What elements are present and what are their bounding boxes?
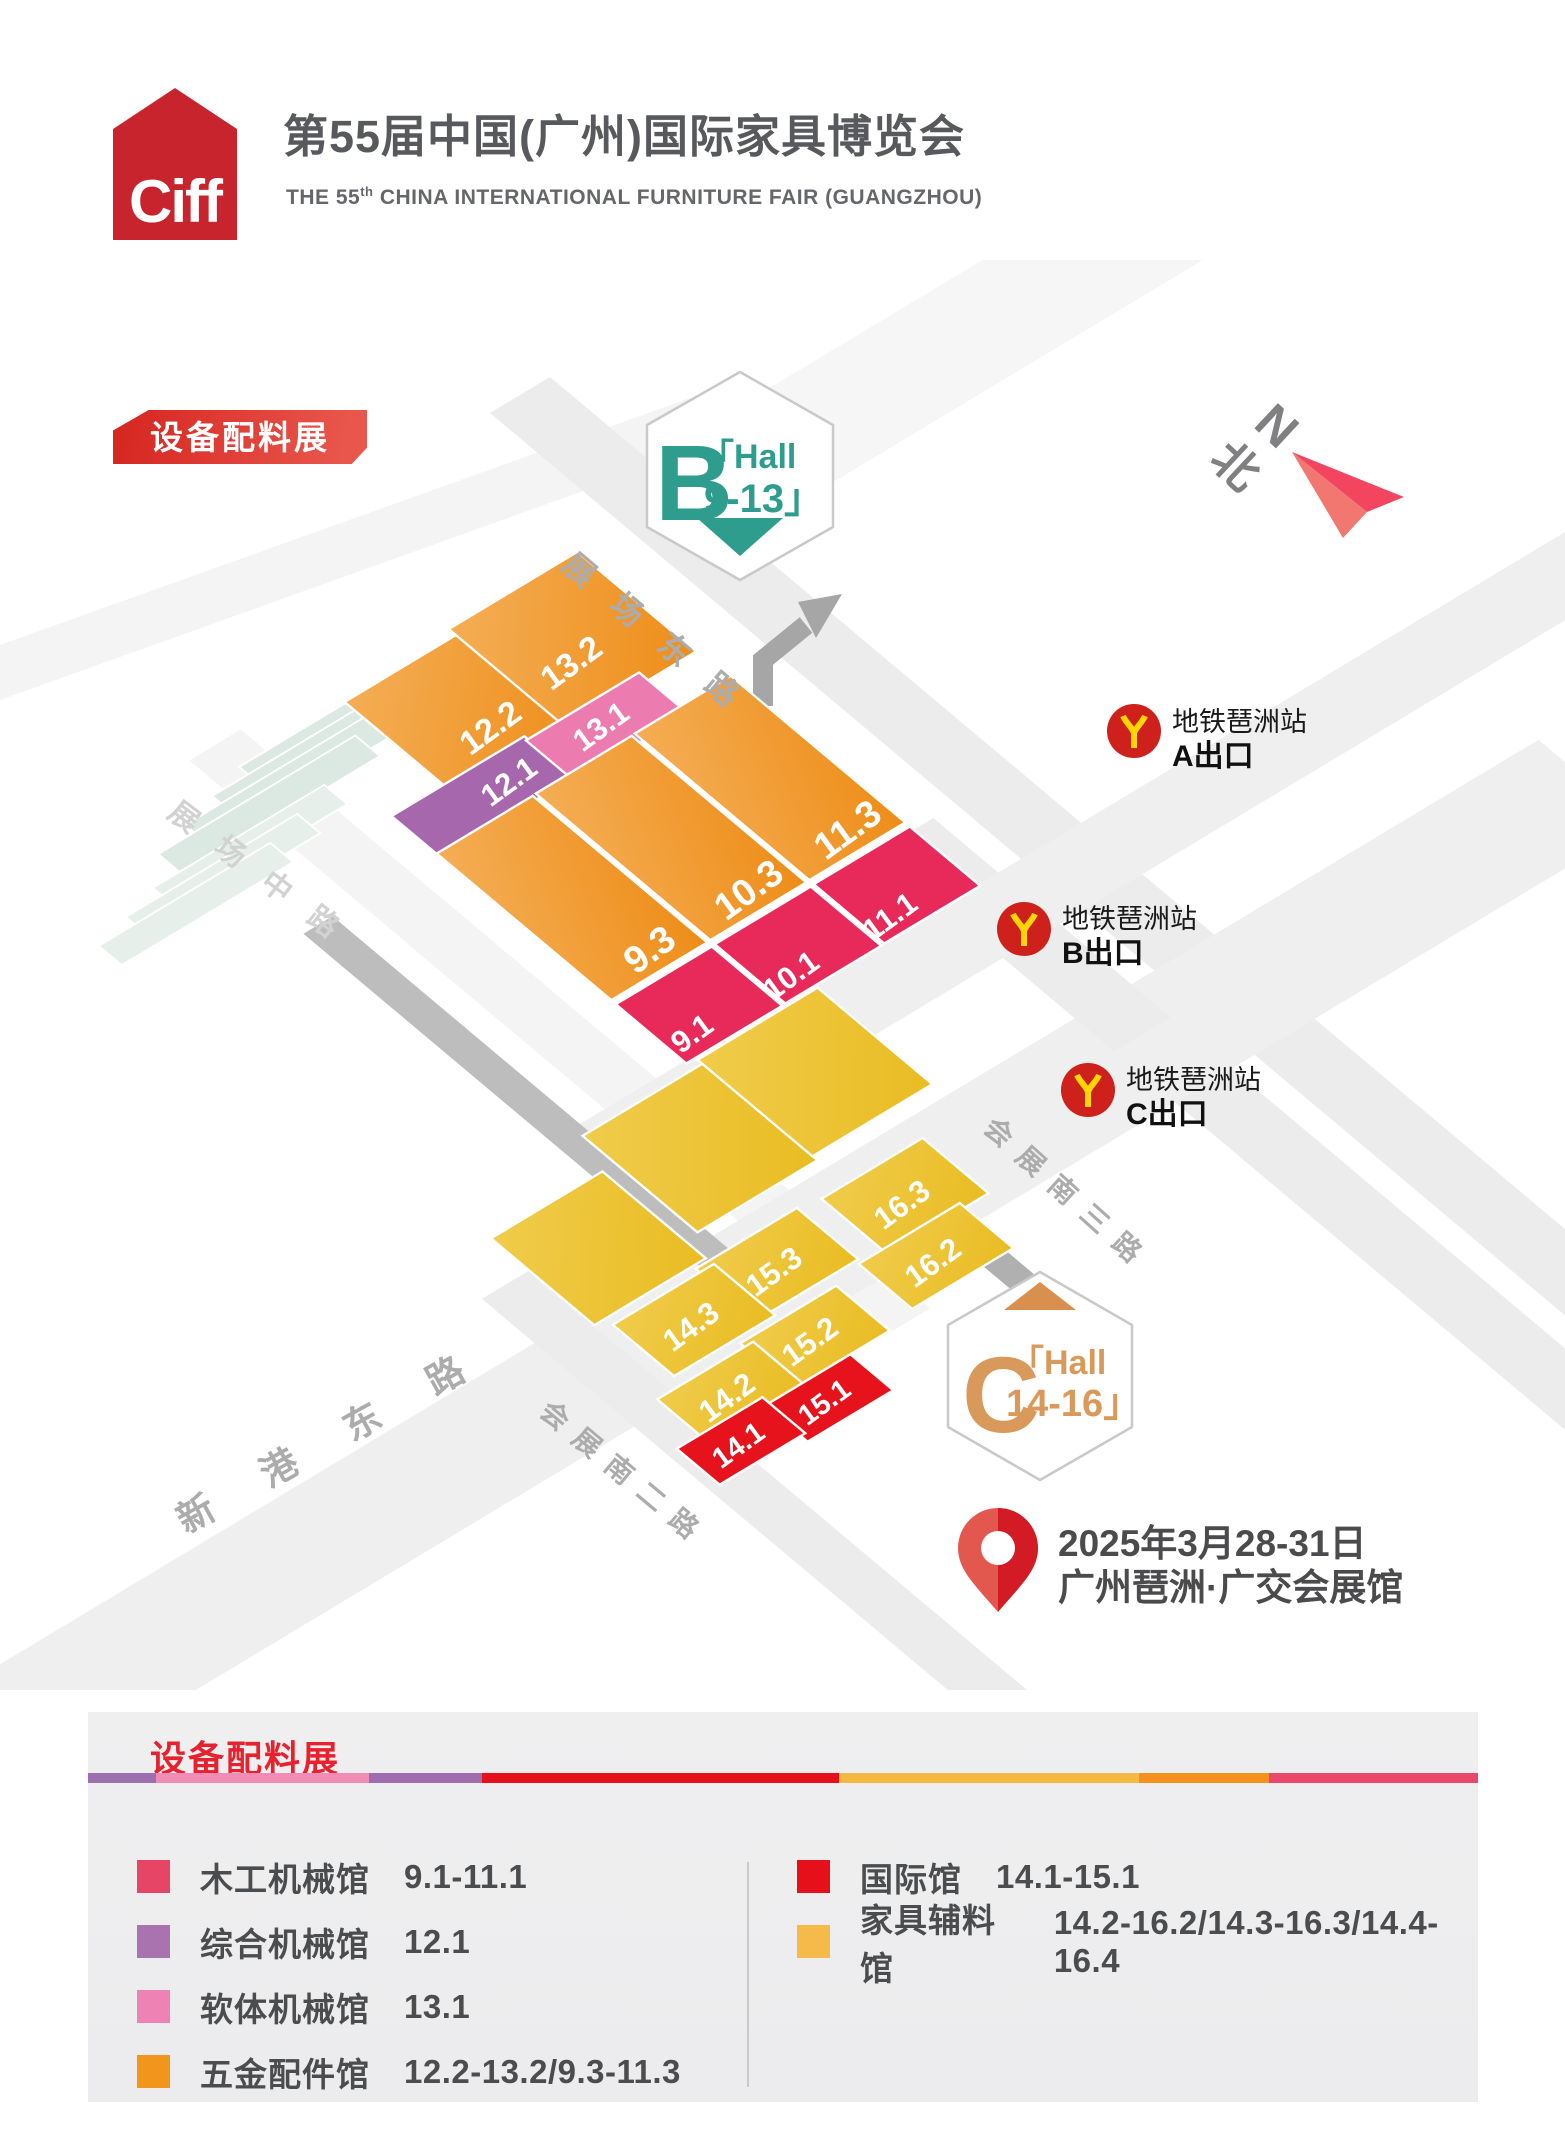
legend-item-general-machinery: 综合机械馆 12.1 <box>137 1925 681 1958</box>
legend-right-column: 国际馆 14.1-15.1 家具辅料馆 14.2-16.2/14.3-16.3/… <box>797 1860 1478 1990</box>
venue-map: 12.2 13.2 12.1 13.1 9.3 10.3 11.3 9.1 10… <box>0 260 1565 1690</box>
location-pin-icon <box>958 1508 1038 1612</box>
hall-badge-c-line2: 14-16」 <box>1006 1383 1141 1425</box>
metro-c-station: 地铁琶洲站 <box>1126 1065 1261 1095</box>
hall-badge-b-line1: 「Hall <box>700 438 796 476</box>
hall-badge-c-line1: 「Hall <box>1010 1344 1106 1382</box>
stripe-seg <box>482 1773 839 1783</box>
legend-range: 13.1 <box>404 1988 470 2026</box>
legend-name: 五金配件馆 <box>200 2048 370 2096</box>
color-swatch <box>797 1860 830 1893</box>
legend-stripe <box>88 1773 1478 1783</box>
metro-b-station: 地铁琶洲站 <box>1062 904 1197 934</box>
metro-icon <box>997 902 1051 956</box>
legend-range: 12.2-13.2/9.3-11.3 <box>404 2053 681 2091</box>
legend-panel: 设备配料展 木工机械馆 9.1-11.1 综合机械馆 12.1 软体机械馆 13… <box>88 1712 1478 2102</box>
event-venue: 广州琶洲·广交会展馆 <box>1058 1566 1403 1608</box>
color-swatch <box>137 1990 170 2023</box>
stripe-seg <box>88 1773 156 1783</box>
metro-icon <box>1107 704 1161 758</box>
color-swatch <box>137 1860 170 1893</box>
legend-name: 综合机械馆 <box>200 1918 370 1966</box>
stripe-seg <box>1269 1773 1478 1783</box>
subtitle-rest: CHINA INTERNATIONAL FURNITURE FAIR (GUAN… <box>373 186 982 209</box>
subtitle-prefix: THE 55 <box>286 186 360 209</box>
north-compass: 北 N <box>1201 393 1404 538</box>
legend-item-furniture-accessories: 家具辅料馆 14.2-16.2/14.3-16.3/14.4-16.4 <box>797 1925 1478 1958</box>
ciff-logo-text: Ciff <box>113 167 237 236</box>
legend-divider <box>747 1862 749 2087</box>
stripe-seg <box>1139 1773 1269 1783</box>
ciff-logo: Ciff <box>113 88 237 240</box>
color-swatch <box>137 1925 170 1958</box>
legend-item-woodworking: 木工机械馆 9.1-11.1 <box>137 1860 681 1893</box>
event-info: 2025年3月28-31日 广州琶洲·广交会展馆 <box>958 1508 1403 1612</box>
legend-range: 12.1 <box>404 1923 470 1961</box>
legend-name: 家具辅料馆 <box>860 1894 1020 1990</box>
subtitle-sup: th <box>360 184 373 199</box>
stripe-seg <box>839 1773 1139 1783</box>
legend-name: 软体机械馆 <box>200 1983 370 2031</box>
legend-item-international: 国际馆 14.1-15.1 <box>797 1860 1478 1893</box>
metro-a-exit: A出口 <box>1172 740 1254 773</box>
stripe-seg <box>369 1773 482 1783</box>
color-swatch <box>797 1925 830 1958</box>
metro-a-station: 地铁琶洲站 <box>1172 707 1307 737</box>
page-title: 第55届中国(广州)国际家具博览会 <box>283 100 965 165</box>
hall-badge-b-line2: 9-13」 <box>704 477 824 521</box>
metro-b-exit: B出口 <box>1062 937 1144 970</box>
legend-range: 9.1-11.1 <box>404 1858 527 1896</box>
legend-left-column: 木工机械馆 9.1-11.1 综合机械馆 12.1 软体机械馆 13.1 五金配… <box>137 1860 681 2120</box>
color-swatch <box>137 2055 170 2088</box>
hall-badge-c: C 「Hall 14-16」 <box>948 1272 1141 1480</box>
legend-range: 14.1-15.1 <box>996 1858 1140 1896</box>
metro-c-exit: C出口 <box>1126 1098 1208 1131</box>
event-date: 2025年3月28-31日 <box>1058 1523 1367 1564</box>
legend-item-hardware: 五金配件馆 12.2-13.2/9.3-11.3 <box>137 2055 681 2088</box>
metro-icon <box>1061 1063 1115 1117</box>
legend-name: 木工机械馆 <box>200 1853 370 1901</box>
legend-range: 14.2-16.2/14.3-16.3/14.4-16.4 <box>1054 1904 1478 1980</box>
legend-item-upholstery-machinery: 软体机械馆 13.1 <box>137 1990 681 2023</box>
stripe-seg <box>156 1773 369 1783</box>
page-subtitle: THE 55th CHINA INTERNATIONAL FURNITURE F… <box>286 184 982 210</box>
